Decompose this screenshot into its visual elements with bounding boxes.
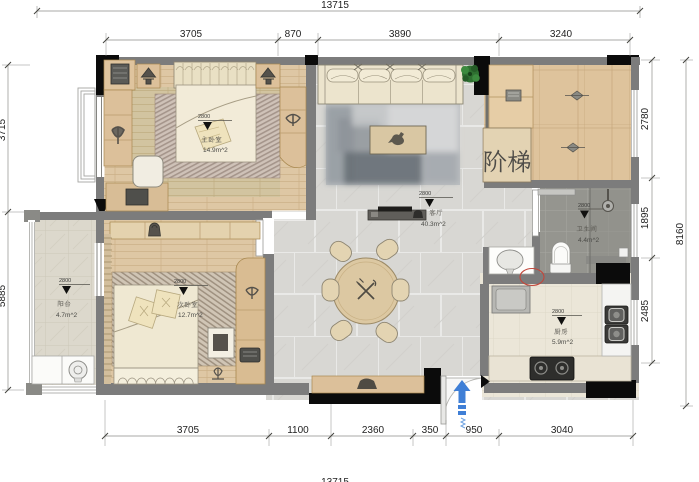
svg-text:4.4m^2: 4.4m^2	[578, 237, 600, 244]
svg-text:2800: 2800	[59, 278, 71, 284]
svg-text:13715: 13715	[321, 477, 349, 482]
svg-text:1100: 1100	[287, 425, 309, 436]
svg-text:2360: 2360	[362, 425, 385, 436]
svg-text:4.7m^2: 4.7m^2	[56, 312, 78, 319]
svg-text:350: 350	[422, 425, 439, 436]
svg-text:2800: 2800	[198, 114, 210, 120]
svg-text:5885: 5885	[0, 284, 8, 307]
svg-text:3705: 3705	[177, 425, 200, 436]
svg-text:870: 870	[285, 29, 302, 40]
svg-text:3705: 3705	[180, 29, 203, 40]
svg-text:8160: 8160	[675, 222, 686, 245]
svg-text:13715: 13715	[321, 0, 349, 11]
svg-text:3240: 3240	[550, 29, 573, 40]
svg-text:14.9m^2: 14.9m^2	[203, 147, 228, 154]
svg-text:3715: 3715	[0, 118, 8, 141]
svg-text:3890: 3890	[389, 29, 412, 40]
svg-text:2800: 2800	[552, 309, 564, 315]
svg-text:40.3m^2: 40.3m^2	[421, 221, 446, 228]
svg-text:2485: 2485	[640, 299, 651, 322]
svg-text:2800: 2800	[174, 279, 186, 285]
svg-text:3040: 3040	[551, 425, 574, 436]
svg-text:950: 950	[466, 425, 483, 436]
svg-text:2800: 2800	[578, 203, 590, 209]
svg-text:5.9m^2: 5.9m^2	[552, 339, 574, 346]
svg-text:2780: 2780	[640, 107, 651, 130]
svg-text:1895: 1895	[640, 206, 651, 229]
svg-text:2800: 2800	[419, 191, 431, 197]
svg-text:12.7m^2: 12.7m^2	[178, 312, 203, 319]
